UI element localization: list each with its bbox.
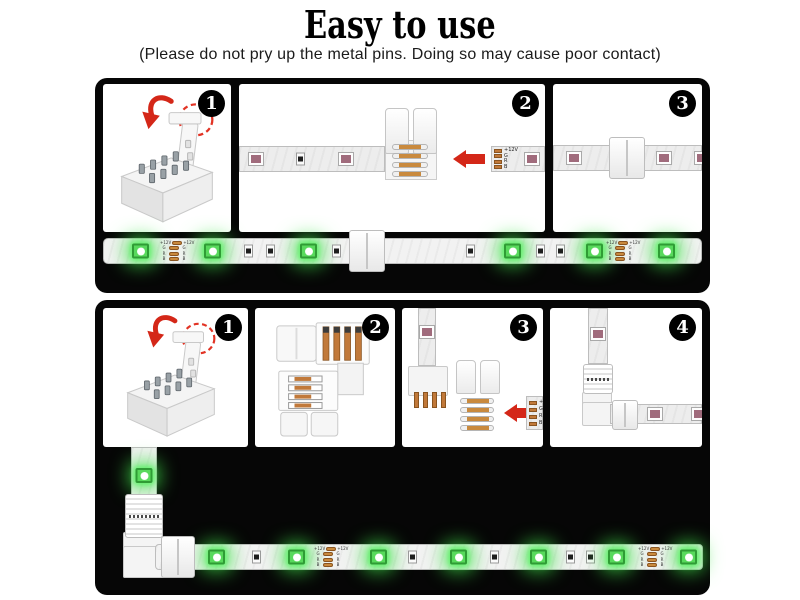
pad: [494, 165, 502, 169]
pin: [460, 398, 494, 404]
pad-label: B: [539, 421, 542, 426]
led-strip-segment: [239, 146, 385, 172]
insert-direction-arrow: [504, 404, 526, 422]
led-chip: [694, 151, 702, 165]
pad-oval: [172, 241, 182, 245]
pin: [414, 392, 419, 408]
pad: [529, 408, 537, 412]
straight-connection-panel: 1 +12V G R B: [95, 78, 710, 293]
pad-label: R: [314, 558, 322, 562]
step-1-box: 1: [103, 308, 248, 447]
led-chip: [338, 152, 354, 166]
connector-pins: [414, 392, 446, 408]
pad-oval: [323, 552, 333, 556]
pad-label: G: [638, 552, 646, 556]
vertical-strip-segment: [418, 308, 436, 366]
connector-lid-half: [456, 360, 476, 394]
green-led: [132, 244, 149, 259]
ridged-connector: [125, 494, 163, 538]
green-led: [658, 244, 675, 259]
resistor: [466, 245, 475, 258]
green-led: [136, 468, 153, 483]
closed-connector: [349, 230, 385, 272]
closed-connector: [609, 137, 645, 179]
pin: [392, 144, 428, 150]
green-led: [680, 550, 697, 565]
step-number-badge: 3: [669, 90, 696, 117]
pad-label: B: [334, 563, 342, 567]
pin: [423, 392, 428, 408]
solder-pads: +12V+12V GG RR BB: [160, 240, 194, 262]
pad-label: R: [180, 252, 188, 256]
pad-oval: [169, 246, 179, 250]
green-led: [504, 244, 521, 259]
pin: [460, 416, 494, 422]
vertical-strip-segment: [588, 308, 608, 364]
green-led: [530, 550, 547, 565]
pad-oval: [647, 563, 657, 567]
pad-oval: [615, 252, 625, 256]
led-chip: [590, 327, 606, 341]
header: Easy to use: [0, 2, 800, 47]
product-instruction-image: Easy to use (Please do not pry up the me…: [0, 0, 800, 600]
pad-oval: [323, 563, 333, 567]
ridged-connector: [583, 364, 613, 394]
pad-label: B: [658, 563, 666, 567]
step-4-box: 4: [550, 308, 702, 447]
pad: [529, 422, 537, 426]
resistor: [296, 153, 305, 166]
pin: [392, 171, 428, 177]
resistor: [536, 245, 545, 258]
pin: [392, 162, 428, 168]
pad-label: G: [626, 246, 634, 250]
pad: [494, 160, 502, 164]
pad-label: G: [314, 552, 322, 556]
pad-label: B: [314, 563, 322, 567]
resistor: [266, 245, 275, 258]
resistor: [566, 551, 575, 564]
pad-label: R: [160, 252, 168, 256]
step-2-box: +12V G R B 2: [239, 84, 545, 232]
solder-pads: +12V+12V GG RR BB: [638, 546, 672, 568]
pad: [529, 415, 537, 419]
resistor: [332, 245, 341, 258]
pad-label: B: [606, 257, 614, 261]
pin: [432, 392, 437, 408]
step-number-badge: 2: [362, 314, 389, 341]
green-led: [450, 550, 467, 565]
step-number-badge: 1: [198, 90, 225, 117]
pad-oval: [647, 552, 657, 556]
led-chip: [647, 407, 663, 421]
step-1-box: 1: [103, 84, 231, 232]
resistor: [556, 245, 565, 258]
led-strip-end: +12V G R B: [526, 396, 543, 430]
connector-lid-half: [480, 360, 500, 394]
pad-label: B: [638, 563, 646, 567]
pad-label: B: [180, 257, 188, 261]
connector-pins: [392, 144, 428, 177]
closed-connector: [612, 400, 638, 430]
pad-label: R: [626, 252, 634, 256]
resistor: [252, 551, 261, 564]
insert-direction-arrow: [453, 150, 485, 168]
step-number-badge: 2: [512, 90, 539, 117]
pad-label: B: [626, 257, 634, 261]
pad: [529, 401, 537, 405]
pad-label: R: [606, 252, 614, 256]
pad-label: G: [334, 552, 342, 556]
resistor: [408, 551, 417, 564]
pad-label: R: [334, 558, 342, 562]
resistor: [490, 551, 499, 564]
corner-connection-panel: 1 2 +12V G: [95, 300, 710, 595]
pad-label: G: [180, 246, 188, 250]
green-led: [204, 244, 221, 259]
pad-oval: [326, 547, 336, 551]
step-3-box: +12V G R B 3: [402, 308, 543, 447]
page-title: Easy to use: [304, 2, 496, 47]
pad-oval: [169, 252, 179, 256]
green-led: [208, 550, 225, 565]
led-chip: [656, 151, 672, 165]
pad-oval: [615, 246, 625, 250]
pad-oval: [647, 558, 657, 562]
lit-horizontal-strip: +12V+12V GG RR BB +12V+12V GG RR BB: [155, 544, 703, 570]
pad-label: G: [658, 552, 666, 556]
strip-end-pads: +12V G R B: [494, 148, 518, 170]
pad: [494, 149, 502, 153]
pad-oval: [169, 257, 179, 261]
open-connector-illustration: [111, 312, 231, 442]
pin: [441, 392, 446, 408]
led-chip: [248, 152, 264, 166]
closed-connector: [161, 536, 195, 578]
lit-led-strip: +12V+12V GG RR BB +12V+12V GG RR BB: [103, 238, 702, 264]
pad-label: B: [504, 165, 507, 170]
pad-label: G: [539, 407, 543, 412]
step-number-badge: 3: [510, 314, 537, 341]
pad-oval: [615, 257, 625, 261]
led-chip: [419, 325, 435, 339]
pad-label: B: [160, 257, 168, 261]
green-led: [300, 244, 317, 259]
solder-pads: +12V+12V GG RR BB: [314, 546, 348, 568]
pad-label: G: [160, 246, 168, 250]
pin: [460, 407, 494, 413]
led-strip-end: +12V G R B: [491, 146, 545, 172]
pad-oval: [618, 241, 628, 245]
green-led: [586, 244, 603, 259]
pad-label: R: [658, 558, 666, 562]
pin: [460, 425, 494, 431]
pad: [494, 154, 502, 158]
green-led: [608, 550, 625, 565]
solder-pads: +12V+12V GG RR BB: [606, 240, 640, 262]
green-led: [370, 550, 387, 565]
resistor: [586, 551, 595, 564]
pad-label: R: [539, 414, 542, 419]
connector-pins: [460, 398, 494, 431]
step-2-box: 2: [255, 308, 395, 447]
led-chip: [691, 407, 702, 421]
green-led: [288, 550, 305, 565]
led-chip: [524, 152, 540, 166]
pad-oval: [323, 558, 333, 562]
pad-label: +12V: [539, 400, 543, 405]
step-number-badge: 4: [669, 314, 696, 341]
resistor: [244, 245, 253, 258]
pad-oval: [650, 547, 660, 551]
strip-end-pads: +12V G R B: [529, 398, 543, 428]
pin: [392, 153, 428, 159]
led-chip: [566, 151, 582, 165]
pad-label: R: [638, 558, 646, 562]
step-number-badge: 1: [215, 314, 242, 341]
step-3-box: 3: [553, 84, 702, 232]
pad-label: G: [606, 246, 614, 250]
warning-note: (Please do not pry up the metal pins. Do…: [0, 46, 800, 64]
